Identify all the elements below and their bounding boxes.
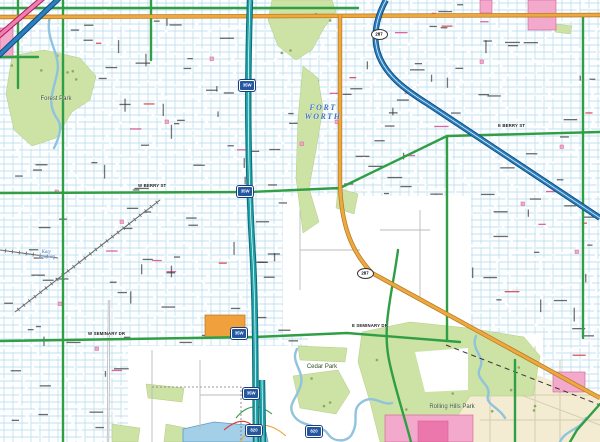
street-map-canvas[interactable] — [0, 0, 600, 442]
map-viewport[interactable]: FORT WORTH Rolling Hills Park Cedar Park… — [0, 0, 600, 442]
